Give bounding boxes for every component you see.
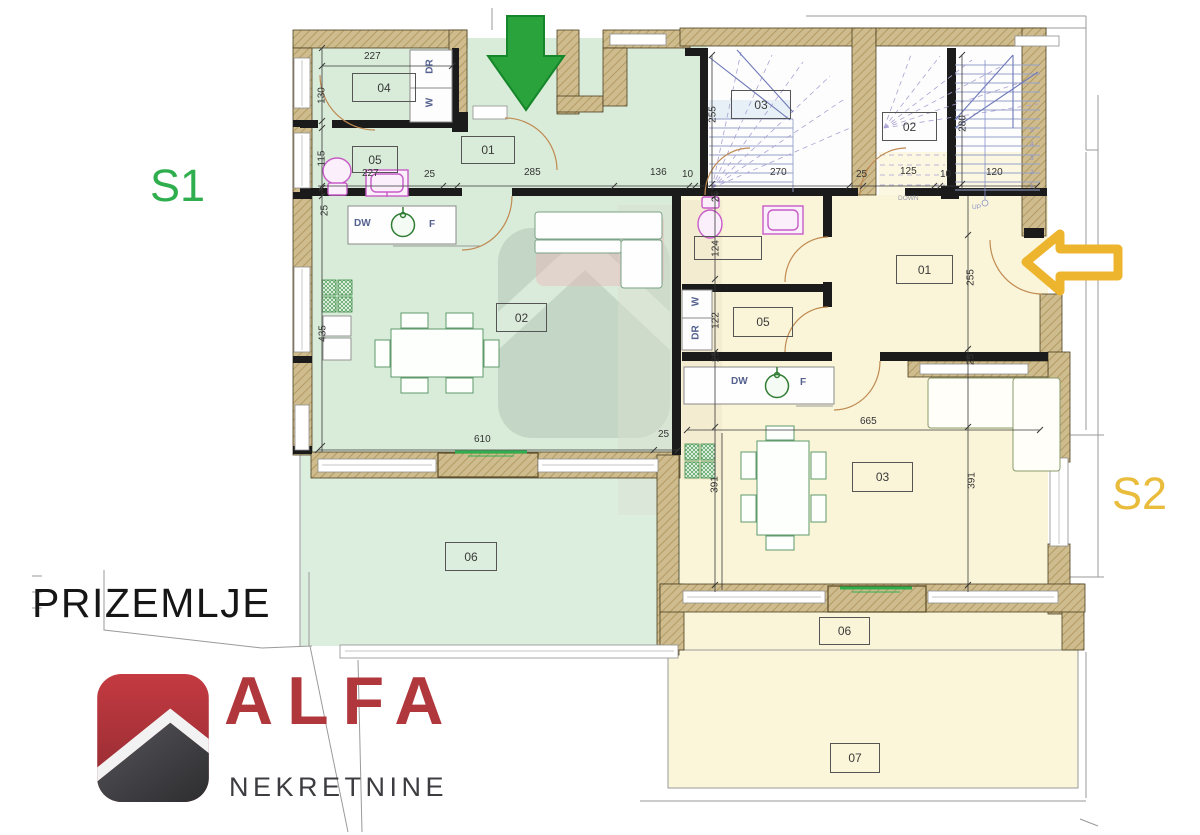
dim-label: 25 [966,343,977,377]
room-label-s2-bath [694,236,762,260]
dim-label: 25 [711,180,722,214]
stair-step-number: 2 [1030,169,1034,176]
dim-label: 122 [711,304,722,338]
dim-label: 115 [317,142,328,176]
room-label-s1-stairs: 03 [731,90,791,119]
washer-label: W [425,88,436,118]
stair-step-number: 5 [1030,127,1034,134]
dim-label: 665 [860,416,877,427]
room-label-s1-wc: 05 [352,146,398,173]
dryer-label: DR [691,318,702,348]
room-label-s2-wardrobe: 05 [733,307,793,337]
room-label-s2-stairs: 02 [882,112,937,141]
dim-label: 610 [474,434,491,445]
dim-label: 130 [317,79,328,113]
unit-label-s1: S1 [150,160,205,212]
dim-label: 280 [958,107,969,141]
dim-label: 25 [424,169,435,180]
stair-step-number: 3 [1030,155,1034,162]
stair-step-number: 1 [1030,183,1034,190]
dim-label: 136 [650,167,667,178]
floor-title: PRIZEMLJE [32,580,271,627]
room-label-s2-garden: 07 [830,743,880,773]
dim-label: 25 [856,169,867,180]
dim-label: 391 [710,468,721,502]
floorplan-page: 227 227 25 285 136 10 270 25 125 10 120 … [0,0,1200,835]
dim-label: 270 [770,167,787,178]
dim-label: 391 [967,464,978,498]
room-label-s2-living: 03 [852,462,913,492]
dim-label: 125 [900,166,917,177]
stairs-down-label: DOWN [898,195,919,202]
dim-label: 10 [682,169,693,180]
room-label-s1-terrace: 06 [445,542,497,571]
room-label-s2-hall: 01 [896,255,953,284]
fridge-label: F [800,377,806,388]
stair-step-number: 4 [1030,141,1034,148]
dryer-label: DR [425,52,436,82]
room-label-s1-living: 02 [496,303,547,332]
dim-label: 255 [966,261,977,295]
dim-label: 255 [708,98,719,132]
brand-name: ALFA [224,662,458,740]
fridge-label: F [429,219,435,230]
dim-label: 120 [986,167,1003,178]
dim-label: 227 [364,51,381,62]
room-label-s1-hall: 01 [461,136,515,164]
room-label-s2-terrace: 06 [819,617,870,645]
dim-label: 25 [658,429,669,440]
alfa-logo-icon [97,674,209,802]
dim-label: 10 [940,169,951,180]
washer-label: W [691,287,702,317]
stairs-up-label: UP [972,204,981,211]
dim-label: 25 [711,340,722,374]
room-label-s1-bath: 04 [352,73,416,102]
dim-label: 435 [318,317,329,351]
dishwasher-label: DW [731,376,748,387]
dim-label: 25 [320,194,331,228]
dishwasher-label: DW [354,218,371,229]
brand-subtitle: NEKRETNINE [229,772,448,803]
washbasin-icon-s2 [763,206,803,234]
kitchen-counter-s2 [684,367,834,406]
unit-label-s2: S2 [1112,468,1167,520]
dim-label: 285 [524,167,541,178]
